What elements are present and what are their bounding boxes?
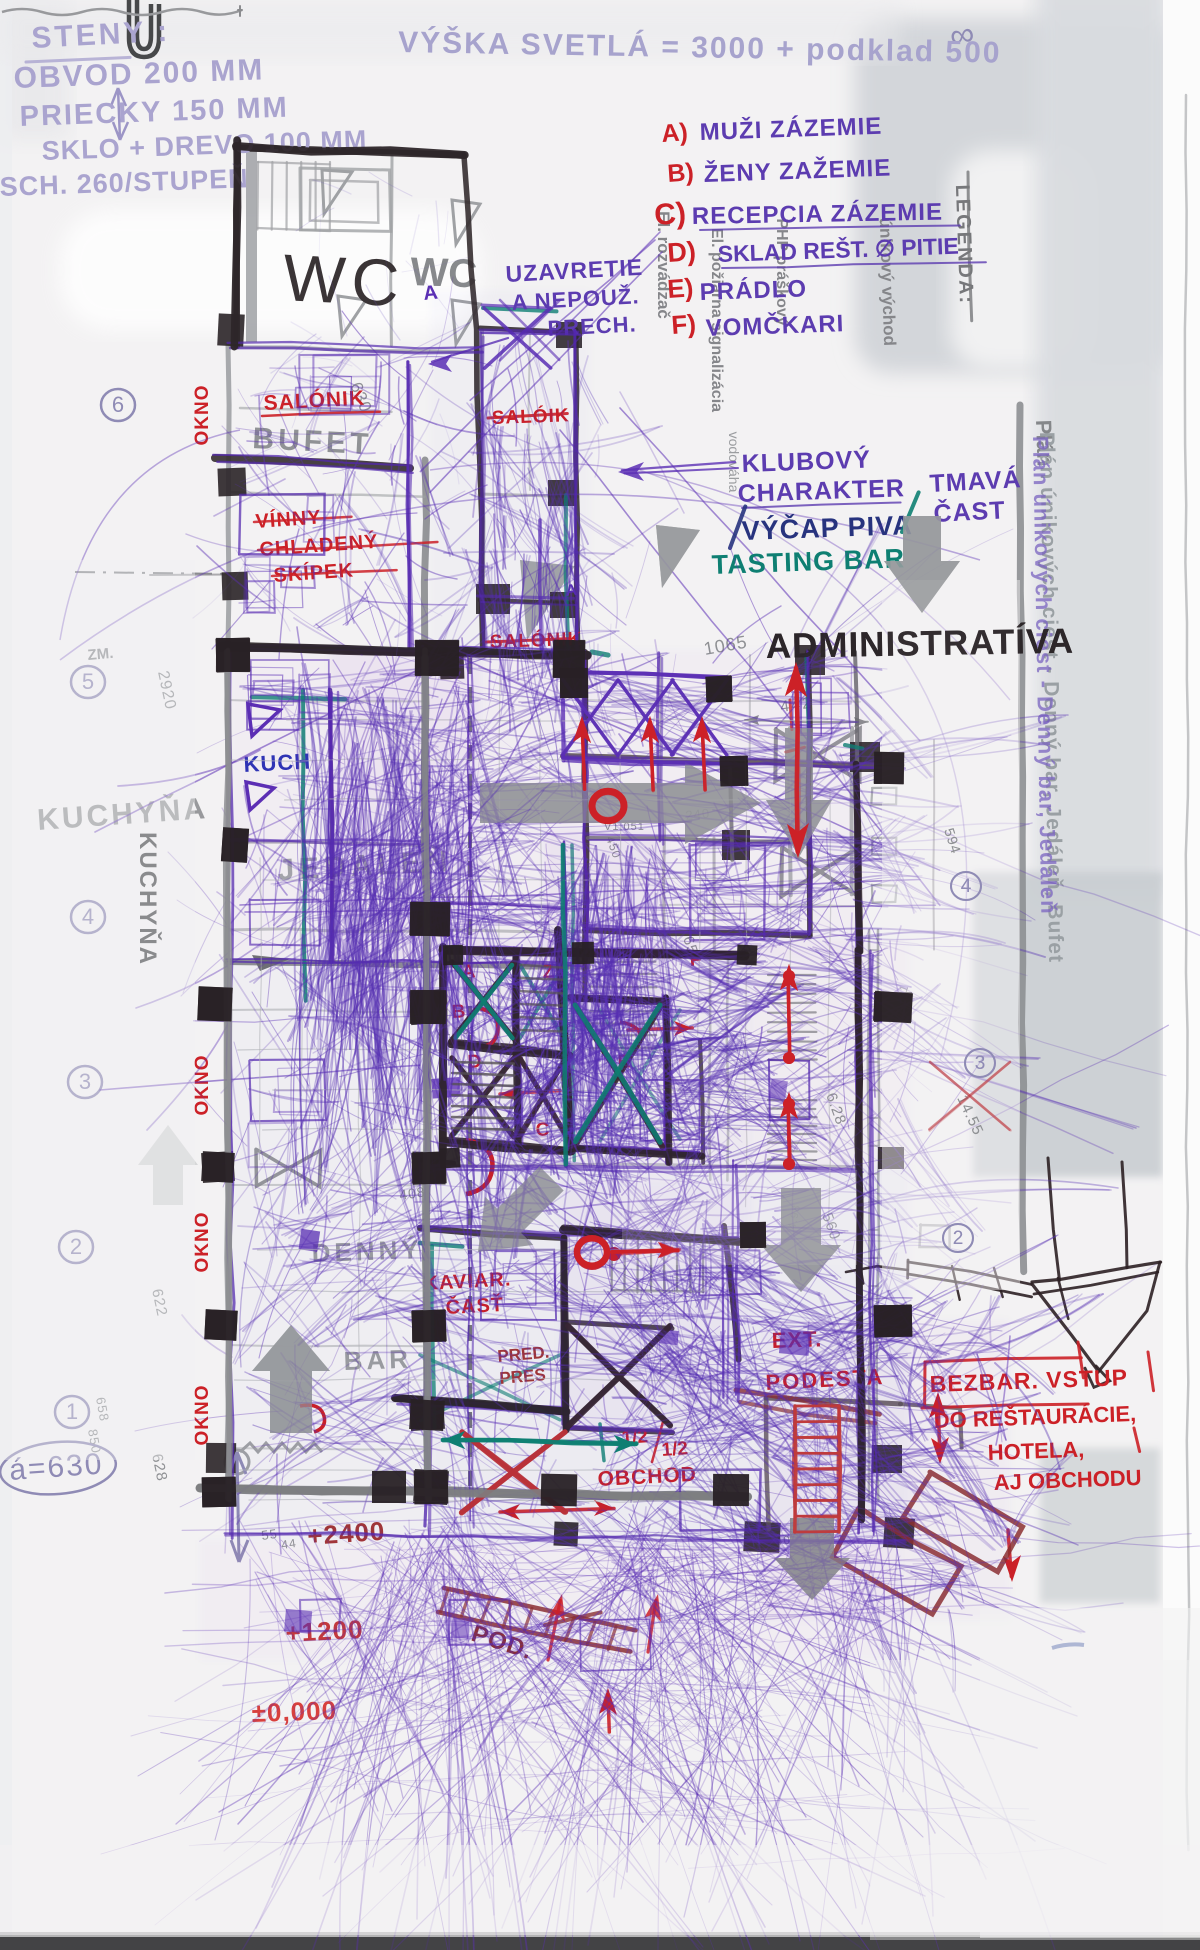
svg-text:WC: WC	[281, 240, 407, 320]
svg-text:E): E)	[666, 272, 694, 304]
svg-text:ADMINISTRATÍVA: ADMINISTRATÍVA	[765, 621, 1074, 666]
svg-text:OKNO: OKNO	[192, 385, 213, 446]
svg-text:OKNO: OKNO	[192, 1212, 213, 1273]
svg-text:KLUBOVÝ: KLUBOVÝ	[741, 444, 871, 478]
svg-text:A): A)	[660, 118, 688, 148]
svg-text:6: 6	[112, 392, 124, 417]
svg-text:AJ OBCHODU: AJ OBCHODU	[993, 1465, 1142, 1495]
svg-text:C): C)	[653, 197, 687, 232]
svg-text:RECEPCIA ZÁZEMIE: RECEPCIA ZÁZEMIE	[692, 198, 944, 230]
svg-text:OKNO: OKNO	[192, 1385, 213, 1446]
svg-text:B): B)	[666, 158, 694, 188]
svg-text:3: 3	[975, 1053, 986, 1074]
svg-text:PRÁDLO: PRÁDLO	[699, 274, 807, 306]
svg-text:VÝČAP PIVA: VÝČAP PIVA	[741, 509, 913, 546]
svg-text:TMAVÁ: TMAVÁ	[929, 464, 1022, 498]
svg-text:ČAST: ČAST	[933, 494, 1007, 528]
svg-text:PHP práškový: PHP práškový	[773, 218, 790, 325]
svg-text:4: 4	[961, 876, 972, 897]
svg-text:2: 2	[953, 1228, 964, 1249]
svg-text:D): D)	[666, 236, 697, 268]
svg-text:VOMČKARI: VOMČKARI	[705, 309, 845, 342]
svg-text:F): F)	[670, 308, 697, 340]
